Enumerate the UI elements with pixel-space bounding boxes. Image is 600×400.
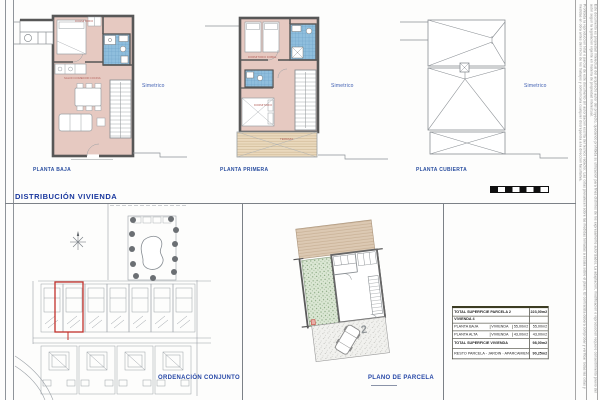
room-label-salon: SALON COMEDOR COCINA [64,77,101,80]
dining-table [75,88,101,106]
left-border-outer [5,0,6,400]
stairs [110,80,131,138]
datum-line [133,153,187,157]
parcel-plan [242,204,443,400]
stairs [295,70,316,130]
cell-label: PLANTA ALTA [453,332,490,336]
detached-houses-rows [41,346,191,394]
drawing-sheet: Prohibida la reproduccion total o parcia… [0,0,600,400]
plan-label-planta-cubierta: PLANTA CUBIERTA [416,167,467,173]
cell-value: 223,00m2 [529,308,548,316]
sofa [59,114,92,131]
bathroom-tiles [103,34,130,65]
datum-line [505,154,568,158]
symmetry-note-2: Simetrico [331,83,354,89]
cell-label: VIVIENDA 4 [453,317,529,321]
cell-use: VIVIENDA [489,332,512,336]
cell-label: PLANTA BAJA [453,325,490,329]
side-table [97,118,105,126]
surface-area-table: TOTAL SUPERFICIE PARCELA 2 223,00m2 VIVI… [452,306,549,359]
cell-label: TOTAL SUPERFICIE VIVIENDA [453,341,529,345]
graphic-scale-bar [490,186,549,193]
bathroom-1 [290,24,316,60]
kitchen-annex [20,20,53,44]
cell-label: TOTAL SUPERFICIE PARCELA 2 [453,310,529,314]
room-label-dormitorio-p1: DORMITORIO [254,104,272,107]
road-curve [15,356,53,400]
bedroom-2-bed [242,98,274,126]
table-row: PLANTA ALTA VIVIENDA 43,00m2 43,00m2 [453,331,548,339]
datum-line [318,155,388,159]
room-label-dormitorio-pb: DORMITORIO [75,20,93,23]
sheet-section-title: DISTRIBUCIÓN VIVIENDA [15,192,117,201]
highlighted-parcel [55,282,83,340]
cell-value: 90,25m2 [529,348,548,358]
floor-plan-planta-primera [200,12,390,172]
cell-use: VIVIENDA [489,325,512,329]
pool [141,236,163,269]
plan-label-planta-baja: PLANTA BAJA [33,167,71,173]
garden-feature [311,319,316,324]
cell-value: 55,00m2 [529,323,548,330]
room-label-dormitorio-doble: DORMITORIO DOBLE [248,56,276,59]
parcel-number: 2 [360,324,368,337]
roof-plan-planta-cubierta [395,12,580,172]
north-compass-icon [70,231,86,250]
surface-table-wrapper: TOTAL SUPERFICIE PARCELA 2 223,00m2 VIVI… [452,306,549,359]
panel-divider-2 [443,204,444,400]
cell-area: 55,00m2 [512,325,529,329]
roof-block-main [428,68,505,130]
terraced-houses-row [41,284,195,332]
cell-value: 43,00m2 [529,331,548,338]
cell-value [529,317,548,323]
cell-area: 43,00m2 [512,332,529,336]
roof-block-upper [428,20,505,66]
table-row: PLANTA BAJA VIVIENDA 55,00m2 55,00m2 [453,323,548,331]
kitchen-counter [55,64,86,74]
plan-label-planta-primera: PLANTA PRIMERA [220,167,268,173]
terrace [237,132,317,157]
symmetry-note-1: Simetrico [142,83,165,89]
margin-note-2: Este documento es propiedad intelectual … [588,4,597,396]
table-row: RESTO PARCELA - JARDIN - APARCAMIENTO 90… [453,348,548,358]
site-plan [13,204,242,400]
parcel-label-underline [371,385,397,386]
bathroom-2 [245,70,273,87]
symmetry-note-3: Simetrico [524,83,547,89]
table-row: VIVIENDA 4 [453,317,548,324]
room-label-terraza: TERRAZA [280,138,293,141]
parcel-plan-label: PLANO DE PARCELA [368,375,434,381]
table-row: TOTAL SUPERFICIE VIVIENDA 98,00m2 [453,339,548,349]
cell-value: 98,00m2 [529,339,548,348]
floor-plan-planta-baja [13,12,193,162]
table-row: TOTAL SUPERFICIE PARCELA 2 223,00m2 [453,308,548,316]
site-plan-label: ORDENACIÓN CONJUNTO [158,375,240,381]
cell-label: RESTO PARCELA - JARDIN - APARCAMIENTO [453,351,529,355]
